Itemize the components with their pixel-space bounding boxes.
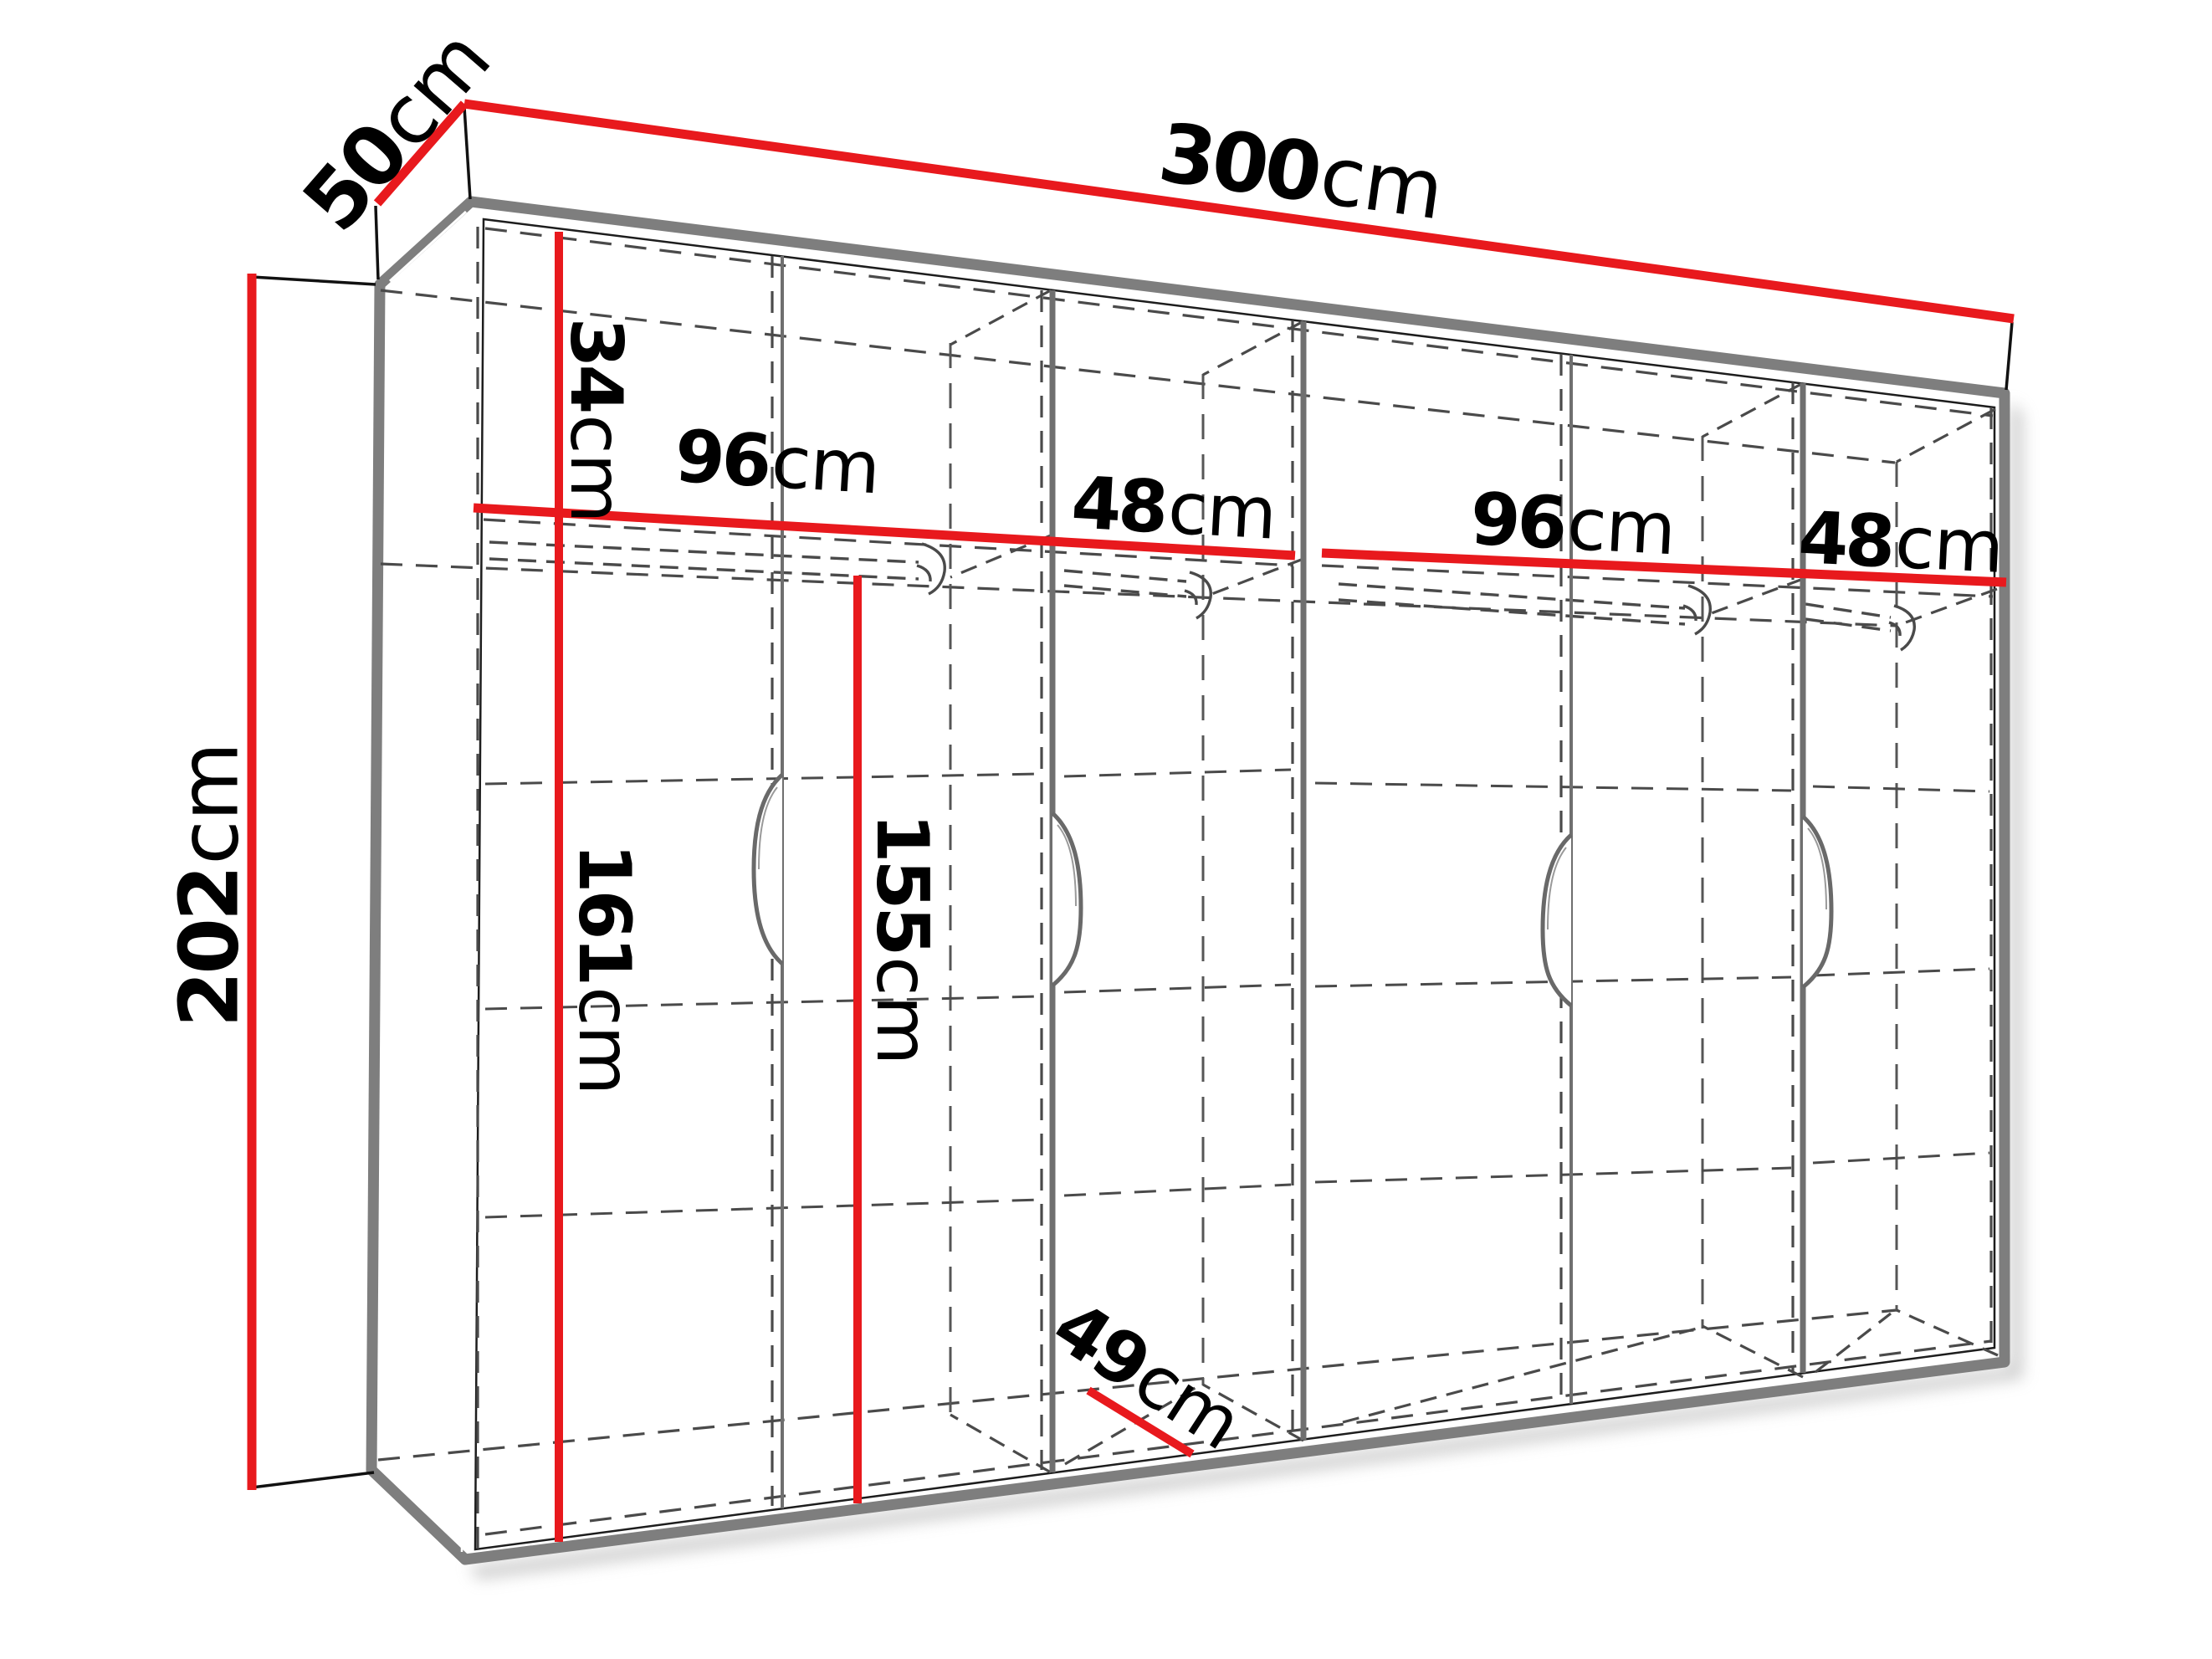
dim-label-section3: 96 cm xyxy=(1469,484,1677,566)
dim-value: 161 xyxy=(568,843,640,984)
dim-unit: cm xyxy=(866,956,938,1064)
dim-unit: cm xyxy=(1565,489,1677,566)
wardrobe-dimension-diagram: 300 cm 50 cm 202 cm 34 cm 96 cm 48 cm 96… xyxy=(0,0,2212,1659)
dim-value: 155 xyxy=(866,813,938,954)
dim-label-section4: 48 cm xyxy=(1797,502,2005,584)
dim-label-height: 202 cm xyxy=(169,743,250,1027)
dim-label-section2: 48 cm xyxy=(1069,467,1278,550)
dim-value: 34 xyxy=(560,318,632,412)
wardrobe-drawing xyxy=(0,0,2212,1659)
dim-label-hang-left: 161 cm xyxy=(568,843,640,1095)
dim-value: 202 xyxy=(169,868,250,1027)
dim-unit: cm xyxy=(568,986,640,1094)
dim-unit: cm xyxy=(770,427,882,505)
dim-unit: cm xyxy=(1893,507,2005,584)
dim-unit: cm xyxy=(560,414,632,522)
dim-unit: cm xyxy=(1315,134,1447,231)
dim-label-section1: 96 cm xyxy=(673,421,882,505)
dim-unit: cm xyxy=(1166,473,1278,550)
dim-label-hang-mid: 155 cm xyxy=(866,813,938,1065)
dim-value: 96 xyxy=(1469,484,1566,561)
dim-unit: cm xyxy=(169,743,250,865)
dim-label-top-shelf: 34 cm xyxy=(560,318,632,523)
dim-value: 96 xyxy=(673,421,771,499)
dim-value: 300 xyxy=(1155,112,1324,214)
dim-value: 48 xyxy=(1069,467,1166,544)
dim-value: 48 xyxy=(1797,502,1894,578)
